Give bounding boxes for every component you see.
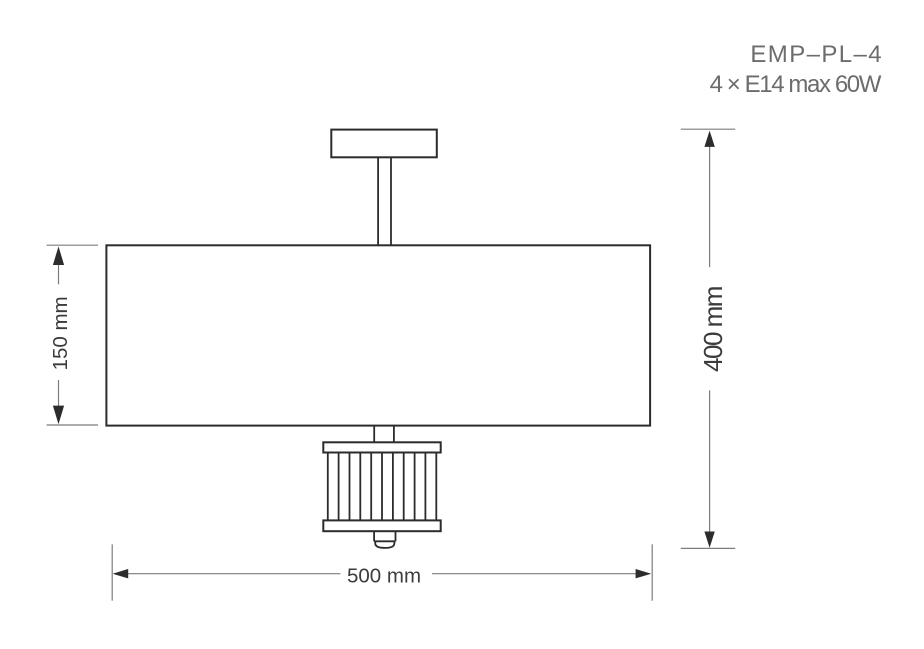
svg-text:500 mm: 500 mm <box>347 564 421 587</box>
svg-text:400 mm: 400 mm <box>698 287 728 372</box>
svg-text:4 × E14 max 60W: 4 × E14 max 60W <box>710 71 882 98</box>
svg-text:EMP–PL–4: EMP–PL–4 <box>750 41 883 68</box>
svg-text:150 mm: 150 mm <box>49 296 72 370</box>
